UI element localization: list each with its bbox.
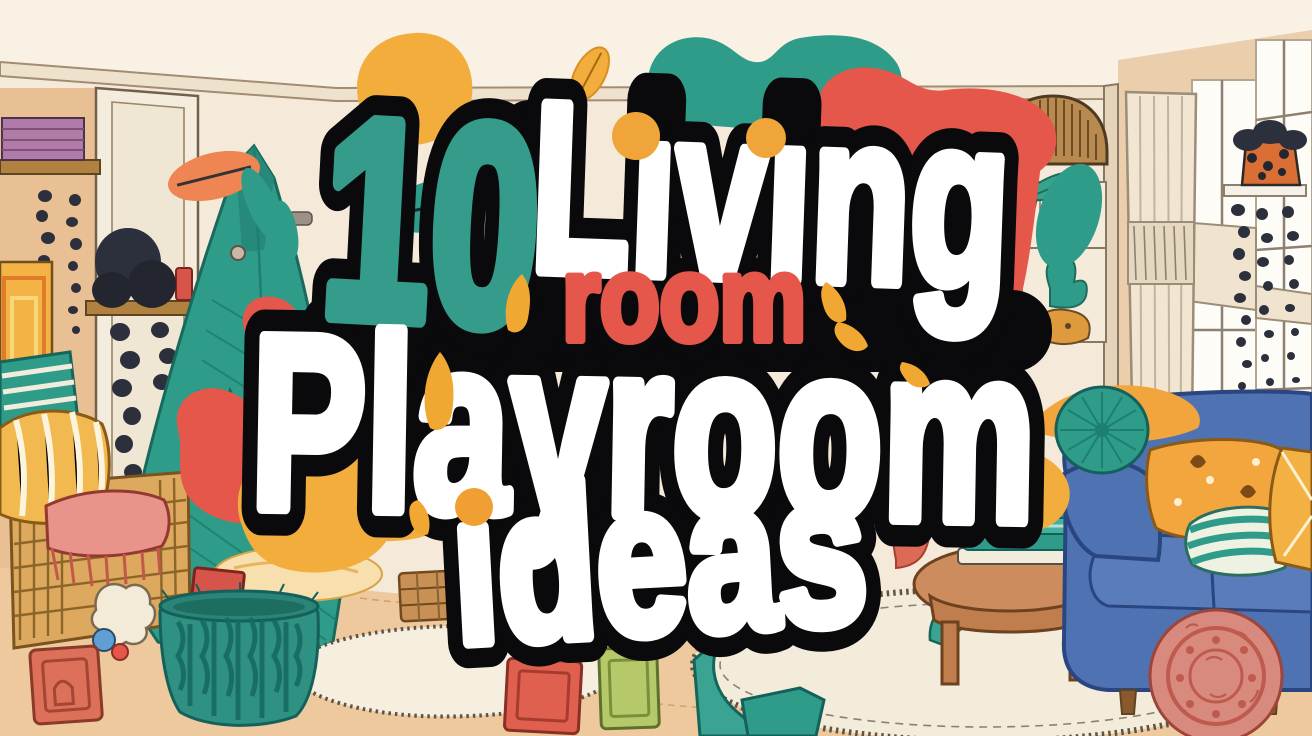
svg-text:ıdeas: ıdeas bbox=[446, 426, 872, 688]
